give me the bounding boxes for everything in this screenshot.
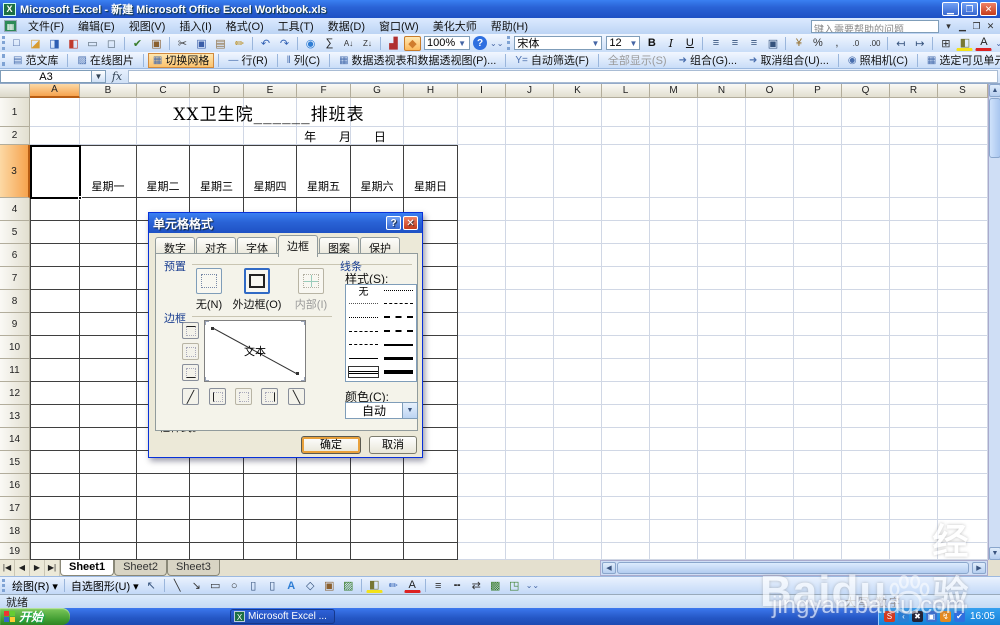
drawing-icon[interactable]: ◆ [404, 36, 421, 51]
column-header-K[interactable]: K [554, 84, 602, 98]
cell-D2[interactable] [190, 127, 244, 145]
cell-E3[interactable]: 星期四 [244, 145, 297, 198]
cell-P19[interactable] [794, 543, 842, 560]
chart-wizard-icon[interactable]: ▟ [385, 36, 402, 51]
cell-M8[interactable] [650, 290, 698, 313]
cell-J2[interactable] [506, 127, 554, 145]
text-box-icon[interactable]: ▯ [245, 578, 262, 593]
cell-I14[interactable] [458, 428, 506, 451]
cell-B11[interactable] [80, 359, 137, 382]
menu-item-7[interactable]: 窗口(W) [372, 17, 426, 35]
insert-picture-icon[interactable]: ▨ [340, 578, 357, 593]
cell-Q18[interactable] [842, 520, 890, 543]
cell-P9[interactable] [794, 313, 842, 336]
cell-M9[interactable] [650, 313, 698, 336]
cell-C16[interactable] [137, 474, 190, 497]
cell-I18[interactable] [458, 520, 506, 543]
cell-L6[interactable] [602, 244, 650, 267]
toolbar-options-icon[interactable]: ⌄⌄ [490, 39, 503, 48]
threed-style-icon[interactable]: ◳ [506, 578, 523, 593]
addin-button-10[interactable]: ◉照相机(C) [843, 53, 913, 68]
cell-I7[interactable] [458, 267, 506, 290]
cell-B6[interactable] [80, 244, 137, 267]
cell-A14[interactable] [30, 428, 80, 451]
cell-F1[interactable] [297, 98, 351, 127]
cell-G16[interactable] [351, 474, 404, 497]
addin-button-7[interactable]: 全部显示(S) [603, 53, 672, 68]
cell-I13[interactable] [458, 405, 506, 428]
cell-S15[interactable] [938, 451, 988, 474]
cell-F17[interactable] [297, 497, 351, 520]
cell-P10[interactable] [794, 336, 842, 359]
sort-descending-icon[interactable]: Z↓ [359, 36, 376, 51]
addin-button-11[interactable]: ▦选定可见单元格(S) [922, 53, 1000, 68]
increase-decimal-icon[interactable]: .0 [847, 36, 864, 51]
border-vertical-button[interactable] [235, 388, 252, 405]
draw-menu-button[interactable]: 绘图(R) ▾ [12, 578, 58, 594]
print-icon[interactable]: ▭ [84, 36, 101, 51]
horizontal-scrollbar[interactable]: ◀ ▶ [600, 560, 988, 576]
cell-K15[interactable] [554, 451, 602, 474]
cell-N18[interactable] [698, 520, 746, 543]
cell-G19[interactable] [351, 543, 404, 560]
workbook-restore-button[interactable]: ❐ [970, 21, 983, 32]
cell-S12[interactable] [938, 382, 988, 405]
cell-I16[interactable] [458, 474, 506, 497]
cell-M4[interactable] [650, 198, 698, 221]
cell-E18[interactable] [244, 520, 297, 543]
line-style-dot[interactable] [349, 312, 378, 322]
cell-J16[interactable] [506, 474, 554, 497]
cell-K16[interactable] [554, 474, 602, 497]
line-style-dashshort[interactable] [384, 299, 413, 309]
cell-M10[interactable] [650, 336, 698, 359]
cell-G18[interactable] [351, 520, 404, 543]
sheet-tab-Sheet1[interactable]: Sheet1 [60, 560, 114, 576]
cell-M18[interactable] [650, 520, 698, 543]
cell-B4[interactable] [80, 198, 137, 221]
workbook-minimize-button[interactable]: ▁ [956, 21, 969, 32]
cell-O9[interactable] [746, 313, 794, 336]
cell-P18[interactable] [794, 520, 842, 543]
cell-A7[interactable] [30, 267, 80, 290]
cell-O5[interactable] [746, 221, 794, 244]
cell-A9[interactable] [30, 313, 80, 336]
cell-P2[interactable] [794, 127, 842, 145]
cell-J3[interactable] [506, 145, 554, 198]
prev-sheet-icon[interactable]: ◀ [15, 560, 30, 576]
cell-E1[interactable] [244, 98, 297, 127]
cell-P8[interactable] [794, 290, 842, 313]
cell-L13[interactable] [602, 405, 650, 428]
cell-R7[interactable] [890, 267, 938, 290]
cell-R2[interactable] [890, 127, 938, 145]
clip-art-icon[interactable]: ▣ [321, 578, 338, 593]
column-header-Q[interactable]: Q [842, 84, 890, 98]
cell-C19[interactable] [137, 543, 190, 560]
border-middle-button[interactable] [182, 343, 199, 360]
cell-J14[interactable] [506, 428, 554, 451]
cell-I3[interactable] [458, 145, 506, 198]
preset-outline-button[interactable] [244, 268, 270, 294]
font-size-select[interactable]: 12▼ [606, 36, 640, 50]
name-box-dropdown-icon[interactable]: ▼ [92, 70, 106, 83]
column-header-O[interactable]: O [746, 84, 794, 98]
cell-R8[interactable] [890, 290, 938, 313]
cell-S1[interactable] [938, 98, 988, 127]
column-header-M[interactable]: M [650, 84, 698, 98]
row-header-6[interactable]: 6 [0, 244, 30, 267]
cell-A12[interactable] [30, 382, 80, 405]
menu-item-6[interactable]: 数据(D) [321, 17, 372, 35]
toolbar-options-icon[interactable]: ⌄⌄ [995, 39, 1000, 48]
cell-L5[interactable] [602, 221, 650, 244]
cell-R13[interactable] [890, 405, 938, 428]
cell-A2[interactable] [30, 127, 80, 145]
cell-O11[interactable] [746, 359, 794, 382]
cell-R10[interactable] [890, 336, 938, 359]
border-right-button[interactable] [261, 388, 278, 405]
cell-H3[interactable]: 星期日 [404, 145, 458, 198]
cell-A18[interactable] [30, 520, 80, 543]
cell-O7[interactable] [746, 267, 794, 290]
addin-button-1[interactable]: ▨在线图片 [72, 53, 138, 68]
cell-D16[interactable] [190, 474, 244, 497]
cell-K18[interactable] [554, 520, 602, 543]
toolbar-drag-handle[interactable] [2, 36, 5, 50]
restore-button[interactable]: ❐ [961, 2, 978, 16]
cell-M7[interactable] [650, 267, 698, 290]
menu-item-5[interactable]: 工具(T) [271, 17, 321, 35]
help-input[interactable]: 键入需要帮助的问题 [811, 20, 939, 33]
cell-R14[interactable] [890, 428, 938, 451]
cell-E16[interactable] [244, 474, 297, 497]
diagonal-up-button[interactable]: ╱ [182, 388, 199, 405]
cell-Q10[interactable] [842, 336, 890, 359]
cell-K11[interactable] [554, 359, 602, 382]
cell-S11[interactable] [938, 359, 988, 382]
autosum-icon[interactable]: ∑ [321, 36, 338, 51]
dash-style-icon[interactable]: ╍ [449, 578, 466, 593]
line-style-dashdot2[interactable] [384, 312, 413, 322]
column-header-R[interactable]: R [890, 84, 938, 98]
cell-L19[interactable] [602, 543, 650, 560]
cell-D18[interactable] [190, 520, 244, 543]
row-header-18[interactable]: 18 [0, 520, 30, 543]
ok-button[interactable]: 确定 [301, 436, 361, 454]
active-cell-selection[interactable] [30, 145, 81, 199]
cell-H2[interactable] [404, 127, 458, 145]
cell-N12[interactable] [698, 382, 746, 405]
dialog-tab-边框[interactable]: 边框 [278, 235, 318, 257]
row-header-5[interactable]: 5 [0, 221, 30, 244]
line-style-thin[interactable] [349, 354, 378, 364]
cell-S14[interactable] [938, 428, 988, 451]
column-header-G[interactable]: G [351, 84, 404, 98]
cell-B9[interactable] [80, 313, 137, 336]
cell-N7[interactable] [698, 267, 746, 290]
cell-J6[interactable] [506, 244, 554, 267]
cell-O16[interactable] [746, 474, 794, 497]
cell-M6[interactable] [650, 244, 698, 267]
color-dropdown-icon[interactable]: ▼ [402, 403, 417, 418]
cell-B14[interactable] [80, 428, 137, 451]
cell-I11[interactable] [458, 359, 506, 382]
cell-C3[interactable]: 星期二 [137, 145, 190, 198]
dialog-close-icon[interactable]: ✕ [403, 216, 418, 230]
cell-J18[interactable] [506, 520, 554, 543]
cell-I2[interactable] [458, 127, 506, 145]
cell-O14[interactable] [746, 428, 794, 451]
cell-K6[interactable] [554, 244, 602, 267]
name-box[interactable]: A3 [0, 70, 92, 83]
cell-E19[interactable] [244, 543, 297, 560]
cell-S17[interactable] [938, 497, 988, 520]
cell-N10[interactable] [698, 336, 746, 359]
undo-icon[interactable]: ↶ [257, 36, 274, 51]
cell-M11[interactable] [650, 359, 698, 382]
taskbar-excel-task[interactable]: X Microsoft Excel ... [230, 609, 335, 624]
cell-R18[interactable] [890, 520, 938, 543]
cell-B2[interactable] [80, 127, 137, 145]
research-icon[interactable]: ▣ [148, 36, 165, 51]
cell-M1[interactable] [650, 98, 698, 127]
cell-L18[interactable] [602, 520, 650, 543]
menu-item-8[interactable]: 美化大师 [426, 17, 484, 35]
line-style-xthick[interactable] [384, 367, 413, 377]
cell-P7[interactable] [794, 267, 842, 290]
cell-J19[interactable] [506, 543, 554, 560]
select-all-corner[interactable] [0, 84, 30, 98]
workbook-close-button[interactable]: ✕ [984, 21, 997, 32]
cell-B18[interactable] [80, 520, 137, 543]
permission-icon[interactable]: ◧ [65, 36, 82, 51]
cell-O18[interactable] [746, 520, 794, 543]
line-style-thick[interactable] [384, 354, 413, 364]
addin-button-5[interactable]: ▦数据透视表和数据透视图(P)... [334, 53, 501, 68]
cell-B12[interactable] [80, 382, 137, 405]
cell-S2[interactable] [938, 127, 988, 145]
cell-A8[interactable] [30, 290, 80, 313]
scroll-down-icon[interactable]: ▼ [989, 547, 1000, 560]
cell-G3[interactable]: 星期六 [351, 145, 404, 198]
cell-O12[interactable] [746, 382, 794, 405]
vertical-scroll-thumb[interactable] [989, 98, 1000, 158]
cell-O19[interactable] [746, 543, 794, 560]
cell-M19[interactable] [650, 543, 698, 560]
fill-color-icon[interactable]: ◧ [366, 578, 383, 593]
scroll-up-icon[interactable]: ▲ [989, 84, 1000, 97]
menu-item-0[interactable]: 文件(F) [21, 17, 71, 35]
cell-J13[interactable] [506, 405, 554, 428]
align-left-icon[interactable]: ≡ [707, 36, 724, 51]
cell-I10[interactable] [458, 336, 506, 359]
toolbar-drag-handle[interactable] [2, 579, 7, 593]
cell-R3[interactable] [890, 145, 938, 198]
cell-K8[interactable] [554, 290, 602, 313]
line-icon[interactable]: ╲ [169, 578, 186, 593]
cell-O3[interactable] [746, 145, 794, 198]
align-right-icon[interactable]: ≡ [745, 36, 762, 51]
column-header-J[interactable]: J [506, 84, 554, 98]
zoom-select[interactable]: 100%▼ [424, 36, 470, 50]
cell-B15[interactable] [80, 451, 137, 474]
cell-S18[interactable] [938, 520, 988, 543]
addin-button-6[interactable]: Y=自动筛选(F) [510, 53, 594, 68]
print-preview-icon[interactable]: ◻ [103, 36, 120, 51]
cell-S6[interactable] [938, 244, 988, 267]
cell-N13[interactable] [698, 405, 746, 428]
font-color-icon[interactable]: A [975, 36, 992, 51]
line-style-icon[interactable]: ≡ [430, 578, 447, 593]
cell-C17[interactable] [137, 497, 190, 520]
cell-J15[interactable] [506, 451, 554, 474]
cell-J11[interactable] [506, 359, 554, 382]
close-button[interactable]: ✕ [980, 2, 997, 16]
arrow-style-icon[interactable]: ⇄ [468, 578, 485, 593]
cell-M2[interactable] [650, 127, 698, 145]
cell-I17[interactable] [458, 497, 506, 520]
cell-B8[interactable] [80, 290, 137, 313]
autoshapes-menu-button[interactable]: 自选图形(U) ▾ [71, 578, 139, 594]
italic-icon[interactable]: I [662, 36, 679, 51]
decrease-indent-icon[interactable]: ↤ [892, 36, 909, 51]
cell-L16[interactable] [602, 474, 650, 497]
merge-center-icon[interactable]: ▣ [764, 36, 781, 51]
cell-O1[interactable] [746, 98, 794, 127]
toolbar-options-icon[interactable]: ⌄⌄ [526, 581, 539, 590]
column-header-D[interactable]: D [190, 84, 244, 98]
column-header-L[interactable]: L [602, 84, 650, 98]
menu-item-3[interactable]: 插入(I) [172, 17, 218, 35]
redo-icon[interactable]: ↷ [276, 36, 293, 51]
cell-S8[interactable] [938, 290, 988, 313]
cell-P4[interactable] [794, 198, 842, 221]
line-style-hair[interactable] [349, 299, 378, 309]
fill-handle[interactable] [78, 196, 82, 200]
row-header-7[interactable]: 7 [0, 267, 30, 290]
tray-chevron-icon[interactable]: ‹ [898, 611, 909, 622]
minimize-button[interactable]: ▁ [942, 2, 959, 16]
cell-I19[interactable] [458, 543, 506, 560]
cell-P11[interactable] [794, 359, 842, 382]
cell-B3[interactable]: 星期一 [80, 145, 137, 198]
line-style-dash[interactable] [349, 340, 378, 350]
hyperlink-icon[interactable]: ◉ [302, 36, 319, 51]
cell-A19[interactable] [30, 543, 80, 560]
help-icon[interactable]: ? [473, 36, 487, 50]
cell-L17[interactable] [602, 497, 650, 520]
toolbar-drag-handle[interactable] [507, 36, 510, 50]
cell-J10[interactable] [506, 336, 554, 359]
cell-L15[interactable] [602, 451, 650, 474]
cell-R5[interactable] [890, 221, 938, 244]
cell-A13[interactable] [30, 405, 80, 428]
cell-O4[interactable] [746, 198, 794, 221]
cell-H16[interactable] [404, 474, 458, 497]
cell-I12[interactable] [458, 382, 506, 405]
shadow-style-icon[interactable]: ▩ [487, 578, 504, 593]
sheet-tab-Sheet2[interactable]: Sheet2 [114, 560, 167, 576]
cell-E17[interactable] [244, 497, 297, 520]
open-folder-icon[interactable]: ◪ [27, 36, 44, 51]
cell-K19[interactable] [554, 543, 602, 560]
cell-M15[interactable] [650, 451, 698, 474]
cell-O8[interactable] [746, 290, 794, 313]
tray-network-icon[interactable]: ▣ [926, 611, 937, 622]
border-preview[interactable]: 文本 [204, 320, 306, 382]
cell-B7[interactable] [80, 267, 137, 290]
cell-E2[interactable] [244, 127, 297, 145]
cell-Q1[interactable] [842, 98, 890, 127]
menu-item-4[interactable]: 格式(O) [219, 17, 271, 35]
paste-icon[interactable]: ▤ [212, 36, 229, 51]
cell-B19[interactable] [80, 543, 137, 560]
cell-N4[interactable] [698, 198, 746, 221]
cell-G17[interactable] [351, 497, 404, 520]
cell-K5[interactable] [554, 221, 602, 244]
cell-P5[interactable] [794, 221, 842, 244]
cell-P3[interactable] [794, 145, 842, 198]
cell-H17[interactable] [404, 497, 458, 520]
row-header-19[interactable]: 19 [0, 543, 30, 560]
cell-M16[interactable] [650, 474, 698, 497]
cell-Q17[interactable] [842, 497, 890, 520]
cell-L14[interactable] [602, 428, 650, 451]
cell-M5[interactable] [650, 221, 698, 244]
cell-P13[interactable] [794, 405, 842, 428]
cell-A6[interactable] [30, 244, 80, 267]
line-style-mdash[interactable] [384, 326, 413, 336]
cell-B10[interactable] [80, 336, 137, 359]
cell-A5[interactable] [30, 221, 80, 244]
font-name-select[interactable]: 宋体▼ [514, 36, 602, 50]
cell-Q4[interactable] [842, 198, 890, 221]
preset-none-button[interactable] [196, 268, 222, 294]
cell-Q5[interactable] [842, 221, 890, 244]
cell-O6[interactable] [746, 244, 794, 267]
cell-B1[interactable] [80, 98, 137, 127]
save-icon[interactable]: ◨ [46, 36, 63, 51]
cell-J5[interactable] [506, 221, 554, 244]
cell-N3[interactable] [698, 145, 746, 198]
cell-B5[interactable] [80, 221, 137, 244]
cell-N9[interactable] [698, 313, 746, 336]
border-top-button[interactable] [182, 322, 199, 339]
cancel-button[interactable]: 取消 [369, 436, 417, 454]
cell-B13[interactable] [80, 405, 137, 428]
border-left-button[interactable] [209, 388, 226, 405]
cell-F3[interactable]: 星期五 [297, 145, 351, 198]
cell-J8[interactable] [506, 290, 554, 313]
cell-K13[interactable] [554, 405, 602, 428]
arrow-icon[interactable]: ↘ [188, 578, 205, 593]
cell-I8[interactable] [458, 290, 506, 313]
rectangle-icon[interactable]: ▭ [207, 578, 224, 593]
format-painter-icon[interactable]: ✏ [231, 36, 248, 51]
cell-N15[interactable] [698, 451, 746, 474]
cell-Q2[interactable] [842, 127, 890, 145]
cell-N16[interactable] [698, 474, 746, 497]
cell-F16[interactable] [297, 474, 351, 497]
cell-J4[interactable] [506, 198, 554, 221]
diagram-icon[interactable]: ◇ [302, 578, 319, 593]
underline-icon[interactable]: U [681, 36, 698, 51]
cell-S5[interactable] [938, 221, 988, 244]
cell-K1[interactable] [554, 98, 602, 127]
line-style-double[interactable] [349, 367, 378, 377]
cell-R9[interactable] [890, 313, 938, 336]
